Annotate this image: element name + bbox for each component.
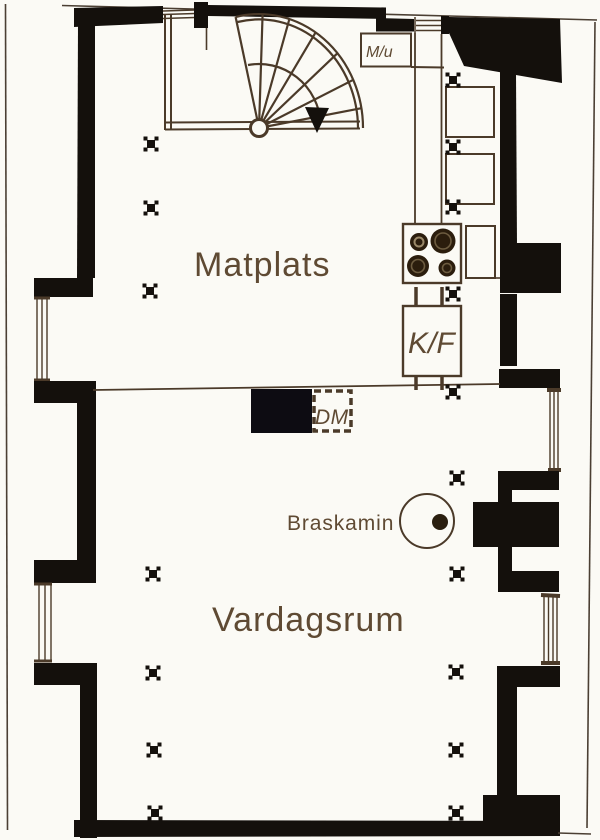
svg-text:K/F: K/F	[408, 327, 456, 360]
svg-text:DM: DM	[315, 406, 349, 429]
svg-text:Braskamin: Braskamin	[287, 512, 394, 535]
svg-text:M/u: M/u	[366, 44, 393, 61]
svg-text:Vardagsrum: Vardagsrum	[212, 601, 405, 639]
svg-text:Matplats: Matplats	[194, 246, 331, 284]
